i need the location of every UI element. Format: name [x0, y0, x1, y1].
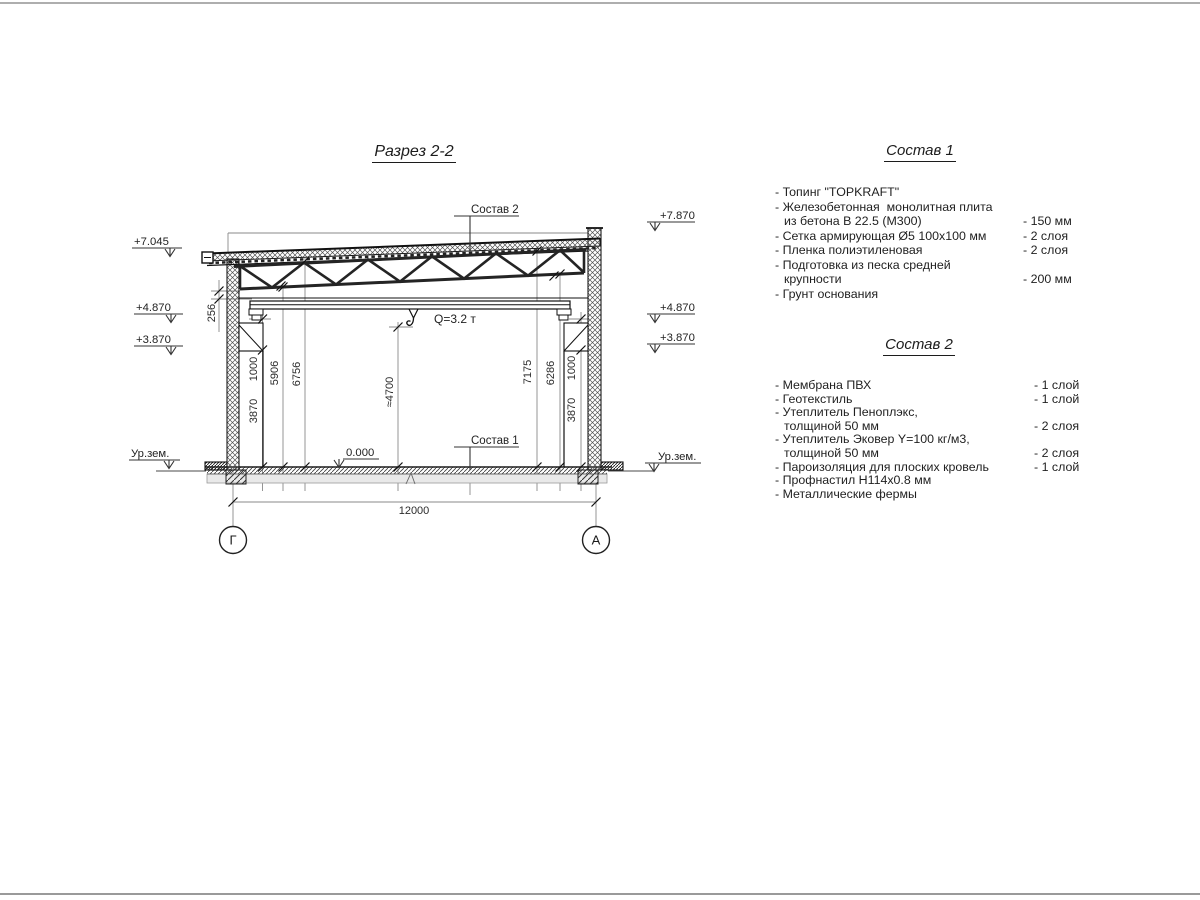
composition2-list: - Мембрана ПВХ - 1 слой - Геотекстиль - … [775, 379, 1098, 501]
ground-level-label-right: Ур.зем. [658, 451, 696, 463]
spec-item-value: - 200 мм [1023, 272, 1090, 287]
spec-item-value: - 2 слоя [1034, 420, 1098, 434]
spec-item-text: - Грунт основания [775, 287, 1023, 302]
elev-right-corbel: +3.870 [660, 332, 695, 344]
spec-row: - Грунт основания [775, 287, 1090, 302]
spec-item-value: - 150 мм [1023, 214, 1090, 229]
spec-item-text: - Топинг "TOPKRAFT" [775, 185, 1023, 200]
dim-right-3870: 3870 [566, 398, 578, 422]
dim-7175: 7175 [522, 360, 534, 384]
elev-left-beam: +4.870 [136, 302, 171, 314]
spec-item-text: - Пароизоляция для плоских кровель [775, 461, 1034, 475]
plinth-ledge-left [205, 462, 227, 470]
wall-right-parapet [588, 228, 601, 470]
dim-left-1000: 1000 [248, 357, 260, 381]
spec-item-value [1034, 488, 1098, 502]
spec-row: крупности - 200 мм [775, 272, 1090, 287]
dim-hook-4700: ≈4700 [384, 377, 396, 408]
spec-item-value [1034, 474, 1098, 488]
composition2-heading: Состав 2 [848, 336, 990, 353]
spec-item-text: - Геотекстиль [775, 393, 1034, 407]
spec-row: - Сетка армирующая Ø5 100x100 мм - 2 сло… [775, 229, 1090, 244]
dim-span-12000: 12000 [399, 505, 430, 517]
spec-item-text: - Железобетонная монолитная плита [775, 200, 1023, 215]
composition1-list: - Топинг "TOPKRAFT" - Железобетонная мон… [775, 185, 1090, 301]
spec-item-value [1023, 258, 1090, 273]
spec-item-text: толщиной 50 мм [775, 447, 1034, 461]
elev-right-beam: +4.870 [660, 302, 695, 314]
dim-6756: 6756 [291, 362, 303, 386]
dim-truss-gap: 256 [206, 304, 218, 322]
spec-item-text: - Пленка полиэтиленовая [775, 243, 1023, 258]
spec-item-value: - 1 слой [1034, 393, 1098, 407]
spec-item-value: - 1 слой [1034, 379, 1098, 393]
elev-floor-zero: 0.000 [346, 447, 374, 459]
spec-item-text: крупности [775, 272, 1023, 287]
crane-capacity-label: Q=3.2 т [434, 312, 476, 326]
spec-item-text: - Подготовка из песка средней [775, 258, 1023, 273]
spec-row: - Подготовка из песка средней [775, 258, 1090, 273]
foundation-block-right [578, 470, 598, 484]
spec-item-text: - Сетка армирующая Ø5 100x100 мм [775, 229, 1023, 244]
dim-6286: 6286 [545, 361, 557, 385]
spec-row: толщиной 50 мм - 2 слоя [775, 420, 1098, 434]
spec-item-value [1034, 406, 1098, 420]
callout-roof-composition: Состав 2 [471, 204, 519, 216]
spec-row: - Топинг "TOPKRAFT" [775, 185, 1090, 200]
elev-left-corbel: +3.870 [136, 334, 171, 346]
composition1-heading: Состав 1 [849, 142, 991, 159]
axis-letter-left: Г [229, 533, 236, 548]
spec-item-value: - 1 слой [1034, 461, 1098, 475]
spec-item-value [1023, 200, 1090, 215]
spec-item-text: - Профнастил Н114x0.8 мм [775, 474, 1034, 488]
spec-item-value [1023, 287, 1090, 302]
spec-row: - Геотекстиль - 1 слой [775, 393, 1098, 407]
axis-letter-right: А [592, 533, 601, 548]
dim-right-1000: 1000 [566, 356, 578, 380]
wall-left [227, 259, 239, 470]
spec-row: - Пароизоляция для плоских кровель - 1 с… [775, 461, 1098, 475]
callout-floor-composition: Состав 1 [471, 435, 519, 447]
ground-level-label-left: Ур.зем. [131, 448, 169, 460]
spec-row: толщиной 50 мм - 2 слоя [775, 447, 1098, 461]
dim-5906: 5906 [269, 361, 281, 385]
spec-row: - Пленка полиэтиленовая - 2 слоя [775, 243, 1090, 258]
crane-hook-icon [407, 309, 418, 325]
spec-item-value [1034, 433, 1098, 447]
spec-item-text: - Утеплитель Пеноплэкс, [775, 406, 1034, 420]
spec-item-text: из бетона В 22.5 (М300) [775, 214, 1023, 229]
spec-row: - Мембрана ПВХ - 1 слой [775, 379, 1098, 393]
elev-left-roof: +7.045 [134, 236, 169, 248]
spec-row: из бетона В 22.5 (М300) - 150 мм [775, 214, 1090, 229]
spec-item-value: - 2 слоя [1023, 229, 1090, 244]
spec-item-value: - 2 слоя [1023, 243, 1090, 258]
spec-item-value [1023, 185, 1090, 200]
spec-row: - Металлические фермы [775, 488, 1098, 502]
spec-item-value: - 2 слоя [1034, 447, 1098, 461]
elev-right-parapet: +7.870 [660, 210, 695, 222]
spec-item-text: - Мембрана ПВХ [775, 379, 1034, 393]
spec-item-text: - Металлические фермы [775, 488, 1034, 502]
plinth-ledge-right [601, 462, 623, 470]
spec-row: - Железобетонная монолитная плита [775, 200, 1090, 215]
dim-left-3870: 3870 [248, 399, 260, 423]
foundation-block-left [226, 470, 246, 484]
axis-bubbles [220, 527, 610, 554]
spec-item-text: толщиной 50 мм [775, 420, 1034, 434]
spec-row: - Утеплитель Пеноплэкс, [775, 406, 1098, 420]
spec-row: - Профнастил Н114x0.8 мм [775, 474, 1098, 488]
spec-item-text: - Утеплитель Эковер Y=100 кг/м3, [775, 433, 1034, 447]
spec-row: - Утеплитель Эковер Y=100 кг/м3, [775, 433, 1098, 447]
